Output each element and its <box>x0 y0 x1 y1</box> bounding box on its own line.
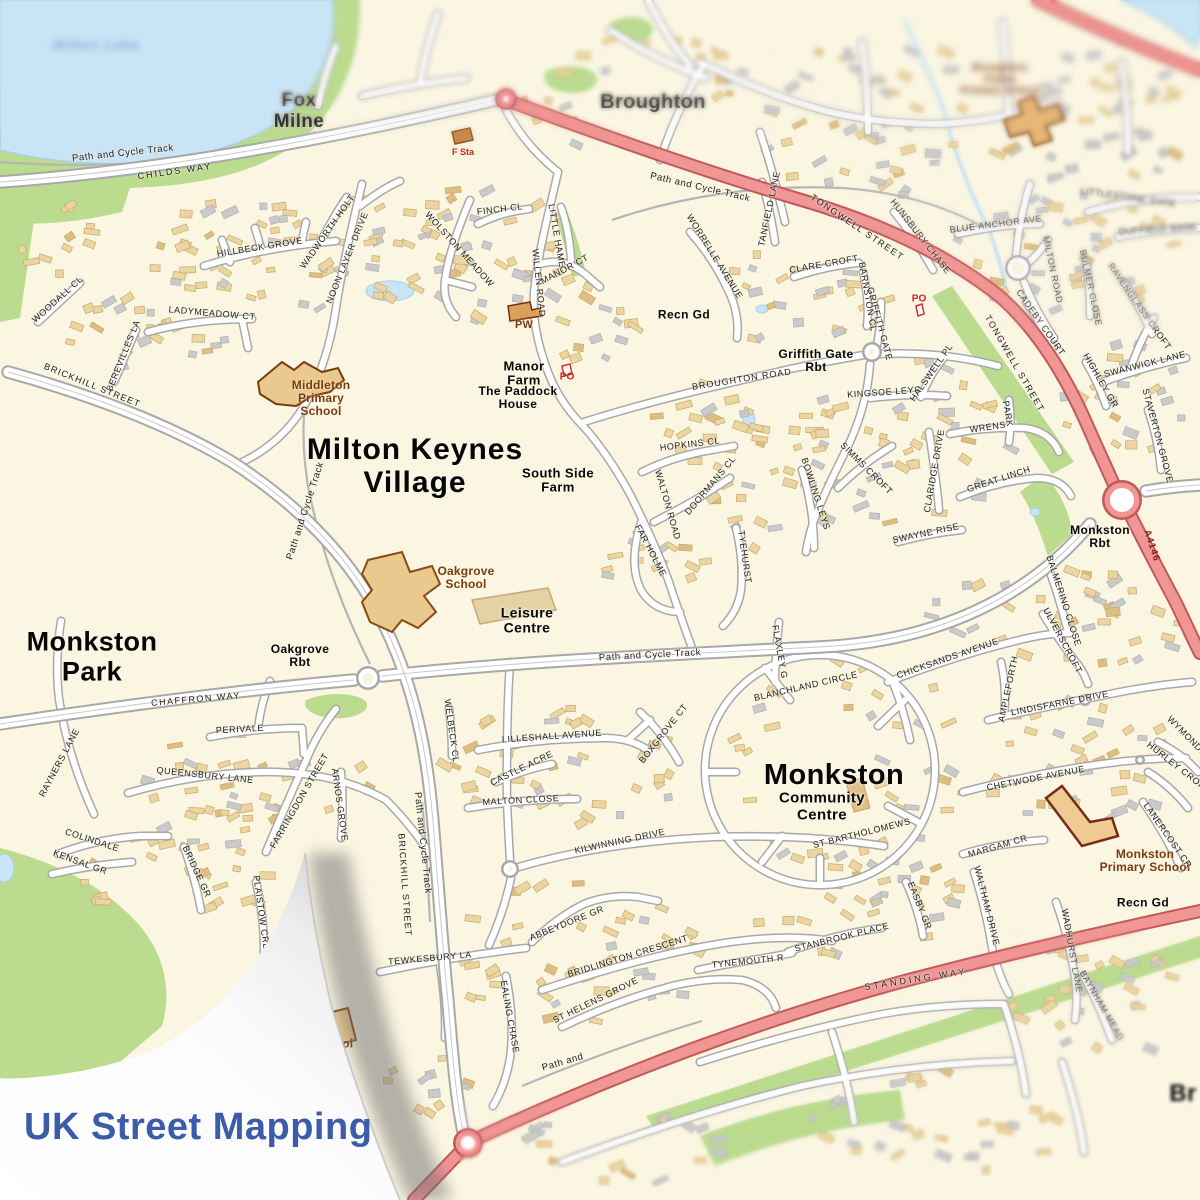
map-product-image: FoxMilneBroughtonMilton KeynesVillageMon… <box>0 0 1200 1200</box>
landmark-buildings <box>258 96 1118 1048</box>
street-map <box>0 0 1200 1200</box>
